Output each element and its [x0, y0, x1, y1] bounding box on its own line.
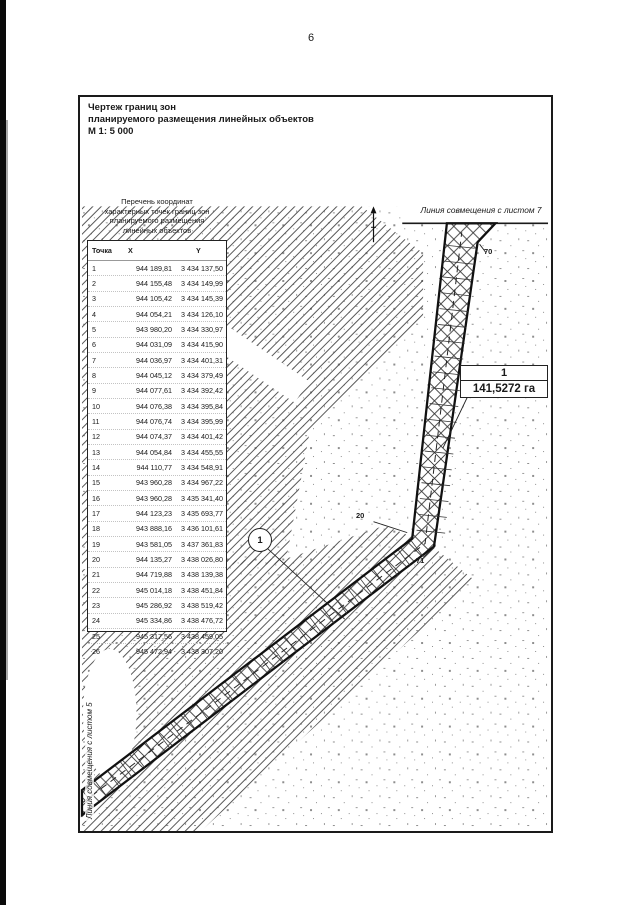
table-cell: 945 014,18 — [116, 586, 172, 595]
table-cell: 3 438 139,38 — [172, 570, 226, 579]
table-row: 1944 189,813 434 137,50 — [88, 261, 226, 276]
table-cell: 3 434 395,99 — [172, 417, 226, 426]
table-row: 15943 960,283 434 967,22 — [88, 476, 226, 491]
table-cell: 944 031,09 — [116, 340, 172, 349]
table-cell: 3 434 415,90 — [172, 340, 226, 349]
table-cell: 944 719,88 — [116, 570, 172, 579]
table-cell: 945 472,94 — [116, 647, 172, 656]
table-cell: 944 077,61 — [116, 386, 172, 395]
table-cell: 5 — [88, 325, 116, 334]
table-cell: 944 105,42 — [116, 294, 172, 303]
table-cell: 945 286,92 — [116, 601, 172, 610]
table-cell: 945 317,56 — [116, 632, 172, 641]
table-cell: 943 888,16 — [116, 524, 172, 533]
coords-table-caption: Перечень координат характерных точек гра… — [87, 197, 227, 235]
table-cell: 3 434 548,91 — [172, 463, 226, 472]
table-cell: 944 135,27 — [116, 555, 172, 564]
table-row: 4944 054,213 434 126,10 — [88, 307, 226, 322]
zone-area-box: 1 141,5272 га — [460, 365, 548, 398]
table-cell: 8 — [88, 371, 116, 380]
table-cell: 944 155,48 — [116, 279, 172, 288]
table-cell: 15 — [88, 478, 116, 487]
table-cell: 944 123,23 — [116, 509, 172, 518]
table-cell: 25 — [88, 632, 116, 641]
point-label-70: 70 — [484, 247, 492, 256]
table-row: 11944 076,743 434 395,99 — [88, 414, 226, 429]
header-point: Точка — [88, 246, 116, 255]
title-line-1: Чертеж границ зон — [88, 102, 418, 114]
table-row: 18943 888,163 436 101,61 — [88, 522, 226, 537]
table-cell: 3 — [88, 294, 116, 303]
table-row: 5943 980,203 434 330,97 — [88, 322, 226, 337]
table-cell: 4 — [88, 310, 116, 319]
caption-line: характерных точек границ зон — [87, 207, 227, 217]
coords-table-rows: 1944 189,813 434 137,502944 155,483 434 … — [88, 261, 226, 659]
title-line-3: М 1: 5 000 — [88, 126, 418, 138]
table-cell: 944 076,38 — [116, 402, 172, 411]
page-number: 6 — [296, 32, 326, 44]
table-cell: 12 — [88, 432, 116, 441]
coords-table: Точка X Y 1944 189,813 434 137,502944 15… — [87, 240, 227, 632]
table-cell: 14 — [88, 463, 116, 472]
table-row: 7944 036,973 434 401,31 — [88, 353, 226, 368]
table-cell: 3 434 149,99 — [172, 279, 226, 288]
header-x: X — [116, 246, 184, 255]
map-sheet-frame: Чертеж границ зон планируемого размещени… — [78, 95, 553, 833]
table-cell: 9 — [88, 386, 116, 395]
table-row: 10944 076,383 434 395,84 — [88, 399, 226, 414]
table-cell: 20 — [88, 555, 116, 564]
table-cell: 18 — [88, 524, 116, 533]
table-cell: 3 438 307,20 — [172, 647, 226, 656]
table-cell: 944 054,21 — [116, 310, 172, 319]
table-cell: 2 — [88, 279, 116, 288]
table-row: 8944 045,123 434 379,49 — [88, 368, 226, 383]
table-cell: 3 434 379,49 — [172, 371, 226, 380]
table-cell: 3 438 459,05 — [172, 632, 226, 641]
table-cell: 3 434 401,31 — [172, 356, 226, 365]
table-cell: 943 581,05 — [116, 540, 172, 549]
table-cell: 24 — [88, 616, 116, 625]
table-cell: 3 438 026,80 — [172, 555, 226, 564]
table-cell: 943 980,20 — [116, 325, 172, 334]
table-row: 19943 581,053 437 361,83 — [88, 537, 226, 552]
table-row: 17944 123,233 435 693,77 — [88, 506, 226, 521]
match-line-left-label: Линия совмещения с листом 5 — [85, 685, 94, 821]
table-cell: 22 — [88, 586, 116, 595]
table-cell: 3 434 137,50 — [172, 264, 226, 273]
table-cell: 3 434 145,39 — [172, 294, 226, 303]
table-cell: 7 — [88, 356, 116, 365]
table-cell: 944 054,84 — [116, 448, 172, 457]
table-row: 25945 317,563 438 459,05 — [88, 629, 226, 644]
table-cell: 6 — [88, 340, 116, 349]
table-cell: 13 — [88, 448, 116, 457]
table-row: 2944 155,483 434 149,99 — [88, 276, 226, 291]
table-row: 9944 077,613 434 392,42 — [88, 384, 226, 399]
table-cell: 1 — [88, 264, 116, 273]
table-cell: 10 — [88, 402, 116, 411]
zone-area-value: 141,5272 га — [461, 381, 547, 397]
table-cell: 3 434 392,42 — [172, 386, 226, 395]
match-line-top-label: Линия совмещения с листом 7 — [408, 205, 554, 215]
table-row: 20944 135,273 438 026,80 — [88, 552, 226, 567]
table-cell: 3 434 126,10 — [172, 310, 226, 319]
table-row: 24945 334,863 438 476,72 — [88, 614, 226, 629]
table-cell: 3 438 519,42 — [172, 601, 226, 610]
table-cell: 3 435 693,77 — [172, 509, 226, 518]
table-cell: 944 110,77 — [116, 463, 172, 472]
table-cell: 945 334,86 — [116, 616, 172, 625]
table-cell: 943 960,28 — [116, 478, 172, 487]
table-row: 14944 110,773 434 548,91 — [88, 460, 226, 475]
coords-table-header: Точка X Y — [88, 241, 226, 261]
table-cell: 944 036,97 — [116, 356, 172, 365]
table-cell: 3 434 330,97 — [172, 325, 226, 334]
table-cell: 944 076,74 — [116, 417, 172, 426]
zone-number-circle: 1 — [248, 528, 272, 552]
drawing-title: Чертеж границ зон планируемого размещени… — [88, 102, 418, 138]
table-cell: 16 — [88, 494, 116, 503]
table-cell: 944 074,37 — [116, 432, 172, 441]
table-cell: 11 — [88, 417, 116, 426]
scan-edge-artifact — [0, 0, 6, 905]
caption-line: линейных объектов — [87, 226, 227, 236]
header-y: Y — [184, 246, 226, 255]
zone-number: 1 — [461, 366, 547, 381]
table-row: 22945 014,183 438 451,84 — [88, 583, 226, 598]
table-cell: 26 — [88, 647, 116, 656]
table-cell: 944 045,12 — [116, 371, 172, 380]
table-cell: 3 436 101,61 — [172, 524, 226, 533]
table-row: 23945 286,923 438 519,42 — [88, 598, 226, 613]
table-cell: 21 — [88, 570, 116, 579]
table-row: 26945 472,943 438 307,20 — [88, 644, 226, 658]
table-cell: 3 437 361,83 — [172, 540, 226, 549]
table-row: 12944 074,373 434 401,42 — [88, 430, 226, 445]
table-cell: 3 434 967,22 — [172, 478, 226, 487]
table-cell: 17 — [88, 509, 116, 518]
table-cell: 19 — [88, 540, 116, 549]
point-label-71: 71 — [416, 556, 424, 565]
table-cell: 3 438 476,72 — [172, 616, 226, 625]
table-row: 6944 031,093 434 415,90 — [88, 338, 226, 353]
table-cell: 3 435 341,40 — [172, 494, 226, 503]
table-cell: 3 434 455,55 — [172, 448, 226, 457]
table-cell: 3 438 451,84 — [172, 586, 226, 595]
table-cell: 23 — [88, 601, 116, 610]
table-row: 3944 105,423 434 145,39 — [88, 292, 226, 307]
table-row: 21944 719,883 438 139,38 — [88, 568, 226, 583]
table-cell: 944 189,81 — [116, 264, 172, 273]
caption-line: Перечень координат — [87, 197, 227, 207]
table-cell: 3 434 395,84 — [172, 402, 226, 411]
table-row: 13944 054,843 434 455,55 — [88, 445, 226, 460]
table-cell: 943 960,28 — [116, 494, 172, 503]
document-page: 6 — [0, 0, 640, 905]
table-cell: 3 434 401,42 — [172, 432, 226, 441]
point-label-20: 20 — [356, 511, 364, 520]
caption-line: планируемого размещения — [87, 216, 227, 226]
table-row: 16943 960,283 435 341,40 — [88, 491, 226, 506]
title-line-2: планируемого размещения линейных объекто… — [88, 114, 418, 126]
